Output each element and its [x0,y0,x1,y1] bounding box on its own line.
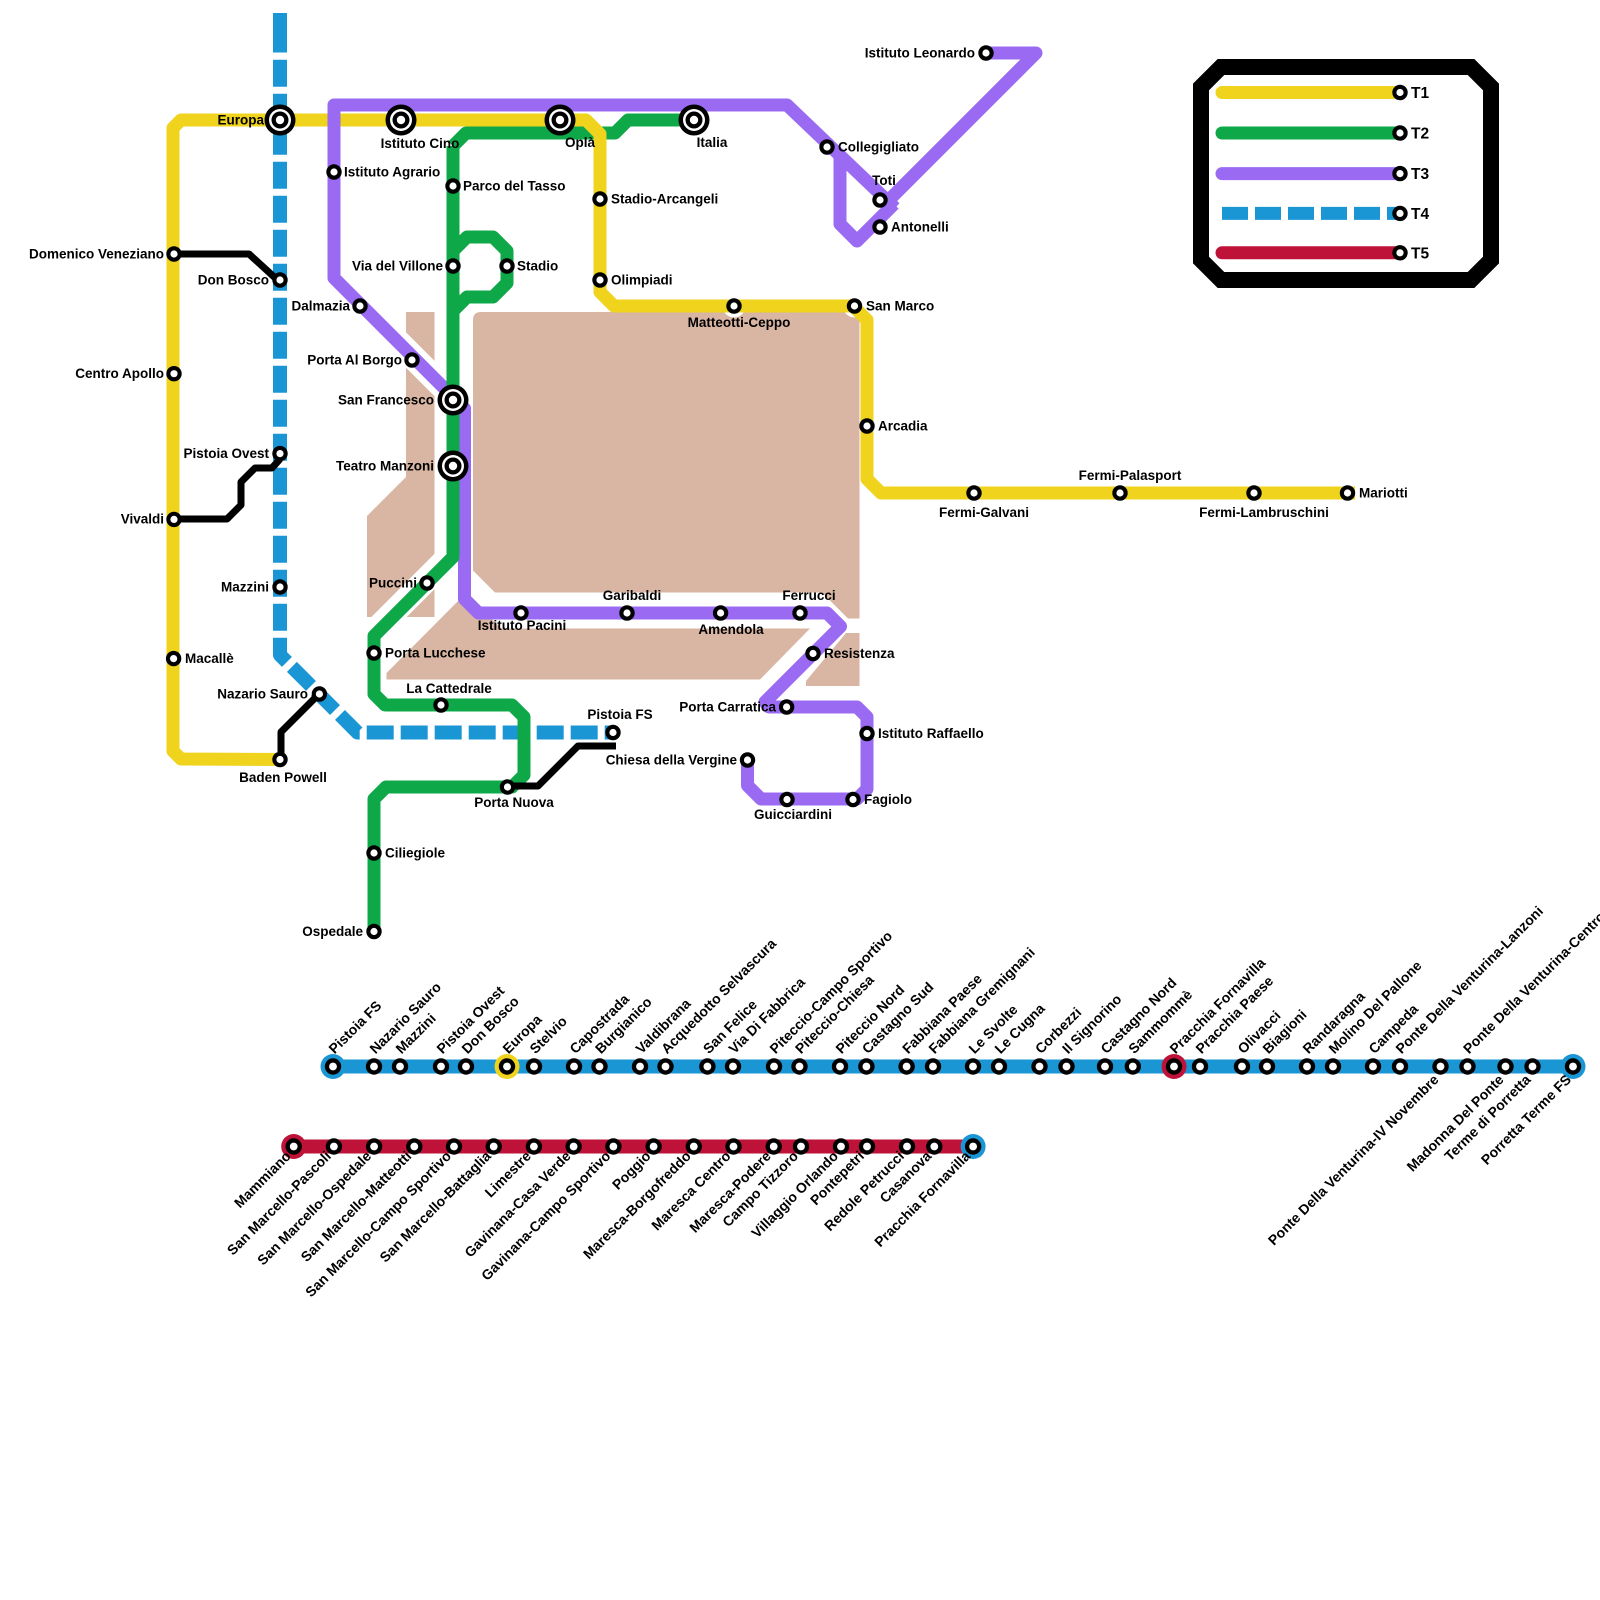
svg-text:Macallè: Macallè [185,651,234,666]
svg-text:La Cattedrale: La Cattedrale [406,681,492,696]
svg-text:Istituto Leonardo: Istituto Leonardo [865,45,975,60]
svg-text:Porta Al Borgo: Porta Al Borgo [307,352,402,367]
svg-text:Porta Lucchese: Porta Lucchese [385,645,486,660]
svg-text:Istituto Cino: Istituto Cino [381,136,460,151]
svg-text:Pistoia Ovest: Pistoia Ovest [183,446,269,461]
svg-text:Dalmazia: Dalmazia [291,298,350,313]
svg-text:San Francesco: San Francesco [338,392,434,407]
svg-text:Baden Powell: Baden Powell [239,770,327,785]
svg-text:Istituto Raffaello: Istituto Raffaello [878,726,984,741]
svg-text:Nazario Sauro: Nazario Sauro [217,686,308,701]
svg-text:Don Bosco: Don Bosco [198,272,269,287]
svg-text:Fermi-Galvani: Fermi-Galvani [939,505,1029,520]
svg-text:Olimpiadi: Olimpiadi [611,272,673,287]
svg-text:Matteotti-Ceppo: Matteotti-Ceppo [688,315,791,330]
svg-text:Istituto Agrario: Istituto Agrario [344,164,440,179]
svg-text:Mazzini: Mazzini [221,579,269,594]
svg-text:Arcadia: Arcadia [878,418,928,433]
svg-text:Fermi-Palasport: Fermi-Palasport [1079,468,1182,483]
svg-text:Vivaldi: Vivaldi [121,512,164,527]
svg-text:Pistoia FS: Pistoia FS [587,707,652,722]
svg-text:San Marco: San Marco [866,298,934,313]
svg-text:Istituto Pacini: Istituto Pacini [478,618,567,633]
svg-text:T4: T4 [1411,206,1429,223]
svg-text:Stadio-Arcangeli: Stadio-Arcangeli [611,191,718,206]
svg-text:Via del Villone: Via del Villone [352,258,444,273]
svg-text:Porta Carratica: Porta Carratica [679,699,776,714]
svg-text:Guicciardini: Guicciardini [754,807,832,822]
svg-text:T1: T1 [1411,85,1429,102]
svg-text:Collegigliato: Collegigliato [838,139,919,154]
svg-text:Parco del Tasso: Parco del Tasso [463,178,566,193]
svg-text:Ciliegiole: Ciliegiole [385,845,446,860]
svg-text:Resistenza: Resistenza [824,646,895,661]
svg-text:Teatro Manzoni: Teatro Manzoni [336,458,434,473]
svg-text:Centro Apollo: Centro Apollo [75,366,164,381]
svg-text:Ferrucci: Ferrucci [782,588,835,603]
svg-text:Italia: Italia [697,135,728,150]
svg-text:Ospedale: Ospedale [302,924,363,939]
svg-text:Fagiolo: Fagiolo [864,792,912,807]
svg-text:Mariotti: Mariotti [1359,485,1408,500]
svg-text:Chiesa della Vergine: Chiesa della Vergine [606,752,738,767]
svg-text:Puccini: Puccini [369,575,417,590]
svg-text:T3: T3 [1411,166,1429,183]
svg-text:Garibaldi: Garibaldi [603,588,662,603]
svg-text:T2: T2 [1411,126,1429,143]
svg-text:Fermi-Lambruschini: Fermi-Lambruschini [1199,505,1329,520]
svg-text:Oplà: Oplà [565,135,595,150]
svg-text:Amendola: Amendola [698,622,764,637]
svg-text:Stadio: Stadio [517,258,558,273]
svg-text:Toti: Toti [872,173,896,188]
svg-text:Porta Nuova: Porta Nuova [474,795,554,810]
svg-text:Europa: Europa [217,112,264,127]
svg-text:Domenico Veneziano: Domenico Veneziano [29,246,164,261]
svg-text:T5: T5 [1411,245,1429,262]
svg-text:Antonelli: Antonelli [891,219,949,234]
